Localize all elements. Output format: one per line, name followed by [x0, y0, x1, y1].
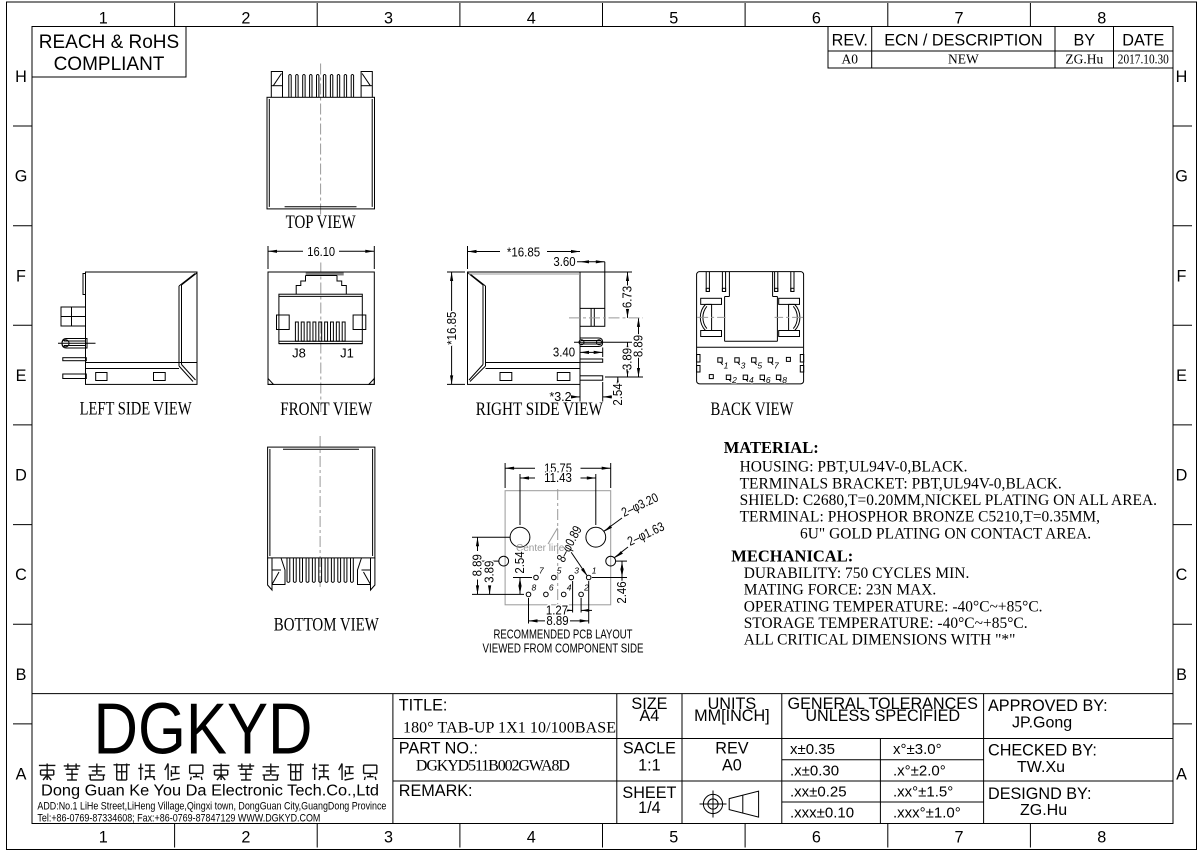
svg-text:2: 2	[583, 583, 589, 593]
svg-text:2017.10.30: 2017.10.30	[1118, 52, 1169, 67]
svg-text:8: 8	[532, 583, 537, 593]
svg-text:.xx°±1.5°: .xx°±1.5°	[893, 784, 953, 801]
svg-text:STORAGE TEMPERATURE: -40°C~+85: STORAGE TEMPERATURE: -40°C~+85°C.	[744, 615, 1028, 632]
svg-text:8.89: 8.89	[546, 613, 568, 628]
svg-text:J1: J1	[340, 346, 354, 361]
svg-text:2.54: 2.54	[610, 383, 625, 405]
svg-text:REACH & RoHS: REACH & RoHS	[39, 32, 179, 53]
svg-text:7: 7	[539, 566, 544, 576]
svg-text:TOP VIEW: TOP VIEW	[286, 213, 356, 233]
svg-text:A0: A0	[842, 52, 859, 67]
svg-text:REV.: REV.	[832, 32, 868, 50]
svg-text:7: 7	[954, 10, 963, 28]
svg-text:.x°±2.0°: .x°±2.0°	[893, 763, 946, 780]
svg-text:ALL CRITICAL DIMENSIONS WITH ": ALL CRITICAL DIMENSIONS WITH "*"	[744, 632, 1016, 649]
svg-text:5: 5	[557, 566, 562, 576]
svg-text:MATERIAL:: MATERIAL:	[724, 438, 819, 457]
svg-text:REMARK:: REMARK:	[399, 782, 473, 800]
svg-text:.xx±0.25: .xx±0.25	[790, 784, 847, 801]
svg-text:H: H	[15, 68, 27, 86]
svg-text:RECOMMENDED PCB LAYOUT: RECOMMENDED PCB LAYOUT	[494, 628, 633, 642]
svg-text:B: B	[16, 666, 27, 684]
svg-text:5: 5	[669, 829, 678, 847]
svg-text:5: 5	[669, 10, 678, 28]
svg-text:180° TAB-UP 1X1 10/100BASE: 180° TAB-UP 1X1 10/100BASE	[403, 720, 616, 737]
svg-text:C: C	[15, 566, 27, 584]
svg-text:TERMINAL: PHOSPHOR BRONZE C521: TERMINAL: PHOSPHOR BRONZE C5210,T=0.35MM…	[740, 509, 1100, 526]
svg-text:APPROVED BY:: APPROVED BY:	[988, 697, 1108, 715]
svg-text:SHIELD: C2680,T=0.20MM,NICKEL: SHIELD: C2680,T=0.20MM,NICKEL PLATING ON…	[740, 492, 1157, 509]
svg-text:DESIGND BY:: DESIGND BY:	[988, 785, 1091, 803]
svg-text:6.73: 6.73	[619, 286, 634, 308]
svg-text:A: A	[16, 766, 27, 784]
svg-text:TW.Xu: TW.Xu	[1017, 759, 1065, 776]
svg-text:JP.Gong: JP.Gong	[1012, 715, 1072, 732]
svg-text:8: 8	[782, 375, 787, 385]
svg-text:TERMINALS BRACKET: PBT,UL94V-0: TERMINALS BRACKET: PBT,UL94V-0,BLACK.	[740, 475, 1062, 492]
svg-text:J8: J8	[292, 346, 306, 361]
svg-text:Dong Guan Ke You Da Electronic: Dong Guan Ke You Da Electronic Tech.Co.,…	[41, 783, 379, 800]
svg-text:B: B	[1176, 666, 1187, 684]
svg-text:5: 5	[757, 361, 762, 371]
svg-text:4: 4	[749, 375, 754, 385]
svg-text:1: 1	[724, 361, 729, 371]
svg-text:OPERATING TEMPERATURE: -40°C~+: OPERATING TEMPERATURE: -40°C~+85°C.	[744, 598, 1043, 615]
svg-text:A: A	[1176, 766, 1187, 784]
svg-text:BY: BY	[1073, 32, 1095, 50]
svg-text:BOTTOM VIEW: BOTTOM VIEW	[274, 616, 379, 636]
svg-text:2: 2	[241, 10, 250, 28]
svg-text:E: E	[16, 367, 27, 385]
svg-text:6: 6	[812, 10, 821, 28]
svg-text:8: 8	[1097, 10, 1106, 28]
svg-text:6U" GOLD PLATING ON CONTACT AR: 6U" GOLD PLATING ON CONTACT AREA.	[800, 525, 1091, 542]
svg-text:TITLE:: TITLE:	[399, 697, 448, 715]
svg-text:1/4: 1/4	[638, 799, 661, 817]
svg-text:C: C	[1176, 566, 1188, 584]
svg-text:ZG.Hu: ZG.Hu	[1020, 802, 1067, 819]
svg-text:.xxx±0.10: .xxx±0.10	[790, 805, 854, 822]
svg-text:DATE: DATE	[1122, 32, 1164, 50]
svg-text:1: 1	[99, 829, 108, 847]
svg-text:.x±0.30: .x±0.30	[790, 763, 839, 780]
svg-text:3.60: 3.60	[553, 254, 575, 269]
svg-text:2: 2	[241, 829, 250, 847]
svg-text:3: 3	[384, 829, 393, 847]
svg-text:7: 7	[954, 829, 963, 847]
svg-text:x±0.35: x±0.35	[790, 741, 835, 758]
svg-text:DURABILITY: 750 CYCLES MIN.: DURABILITY: 750 CYCLES MIN.	[744, 565, 970, 582]
svg-text:1: 1	[99, 10, 108, 28]
svg-text:Tel:+86-0769-87334608; Fax:+86: Tel:+86-0769-87334608; Fax:+86-0769-8784…	[37, 813, 320, 825]
svg-text:4: 4	[527, 10, 536, 28]
svg-text:G: G	[1175, 168, 1188, 186]
svg-text:ADD:No.1 LiHe Street,LiHeng Vi: ADD:No.1 LiHe Street,LiHeng Village,Qing…	[37, 801, 386, 813]
svg-text:F: F	[16, 267, 26, 285]
svg-text:UNLESS SPECIFIED: UNLESS SPECIFIED	[805, 707, 960, 725]
svg-text:A0: A0	[722, 757, 742, 775]
svg-text:D: D	[15, 467, 27, 485]
svg-text:2.46: 2.46	[614, 581, 629, 603]
svg-text:ECN / DESCRIPTION: ECN / DESCRIPTION	[884, 32, 1042, 50]
svg-text:2–φ1.63: 2–φ1.63	[625, 519, 667, 549]
svg-text:BACK VIEW: BACK VIEW	[711, 400, 794, 420]
svg-text:2: 2	[731, 375, 737, 385]
svg-text:MECHANICAL:: MECHANICAL:	[731, 546, 853, 565]
svg-text:6: 6	[549, 583, 554, 593]
svg-text:COMPLIANT: COMPLIANT	[54, 54, 165, 75]
svg-text:4: 4	[567, 583, 572, 593]
svg-text:.xxx°±1.0°: .xxx°±1.0°	[893, 805, 961, 822]
svg-text:G: G	[15, 168, 28, 186]
svg-text:DGKYD: DGKYD	[94, 690, 313, 770]
svg-text:VIEWED FROM COMPONENT SIDE: VIEWED FROM COMPONENT SIDE	[483, 642, 644, 656]
svg-text:PART NO.:: PART NO.:	[399, 740, 478, 758]
svg-text:E: E	[1176, 367, 1187, 385]
svg-text:*16.85: *16.85	[507, 244, 540, 259]
svg-text:A4: A4	[639, 707, 659, 725]
svg-text:SACLE: SACLE	[623, 740, 676, 758]
svg-text:8: 8	[1097, 829, 1106, 847]
svg-text:3: 3	[741, 361, 746, 371]
svg-text:MM[INCH]: MM[INCH]	[694, 707, 770, 725]
svg-text:4: 4	[527, 829, 536, 847]
svg-text:3.40: 3.40	[553, 344, 575, 359]
svg-text:1: 1	[592, 566, 597, 576]
svg-text:ZG.Hu: ZG.Hu	[1065, 52, 1103, 67]
svg-text:2–φ3.20: 2–φ3.20	[619, 490, 661, 520]
svg-text:F: F	[1177, 267, 1187, 285]
svg-text:H: H	[1176, 68, 1188, 86]
svg-text:6: 6	[766, 375, 771, 385]
svg-text:6: 6	[812, 829, 821, 847]
svg-text:REV: REV	[715, 740, 748, 758]
svg-text:D: D	[1176, 467, 1188, 485]
svg-text:DGKYD511B002GWA8D: DGKYD511B002GWA8D	[416, 758, 570, 775]
svg-text:11.43: 11.43	[544, 470, 572, 485]
svg-text:7: 7	[774, 361, 779, 371]
svg-text:*16.85: *16.85	[444, 312, 459, 345]
svg-text:3: 3	[574, 566, 579, 576]
svg-text:HOUSING: PBT,UL94V-0,BLACK.: HOUSING: PBT,UL94V-0,BLACK.	[740, 459, 968, 476]
svg-text:RIGHT SIDE VIEW: RIGHT SIDE VIEW	[476, 400, 603, 420]
svg-text:16.10: 16.10	[307, 244, 335, 259]
svg-text:3: 3	[384, 10, 393, 28]
svg-text:2.54: 2.54	[512, 551, 527, 573]
svg-text:1:1: 1:1	[638, 757, 661, 775]
svg-text:FRONT VIEW: FRONT VIEW	[280, 400, 372, 420]
svg-text:CHECKED BY:: CHECKED BY:	[988, 742, 1097, 760]
svg-text:NEW: NEW	[948, 52, 979, 67]
svg-text:3.89: 3.89	[620, 348, 635, 370]
svg-text:3.89: 3.89	[481, 561, 496, 583]
svg-text:LEFT SIDE VIEW: LEFT SIDE VIEW	[80, 400, 192, 420]
svg-text:x°±3.0°: x°±3.0°	[893, 741, 942, 758]
svg-text:MATING FORCE: 23N MAX.: MATING FORCE: 23N MAX.	[744, 582, 937, 599]
